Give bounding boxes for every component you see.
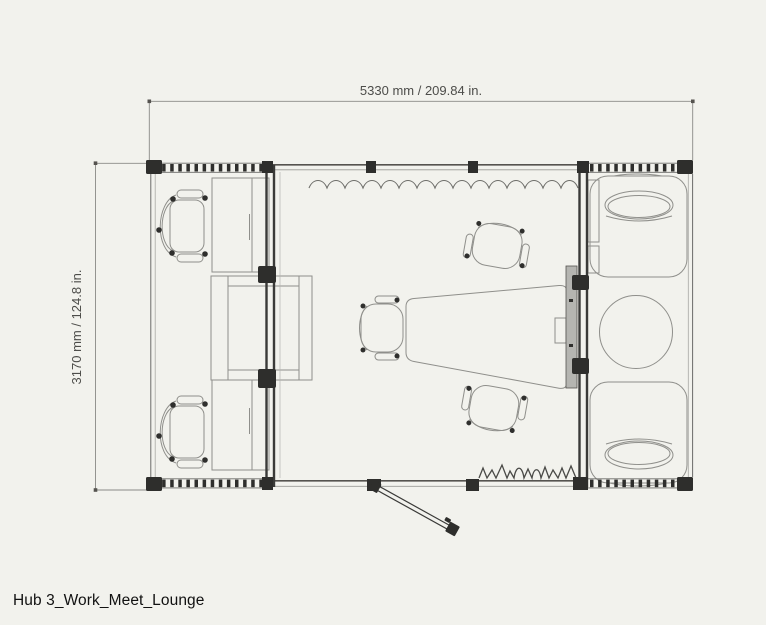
work-area xyxy=(156,178,312,470)
meeting-chair-head xyxy=(360,296,404,360)
wall-left xyxy=(151,174,155,477)
dimension-width-label: 5330 mm / 209.84 in. xyxy=(360,83,482,98)
task-chair-bottom xyxy=(156,396,208,468)
desk-bottom xyxy=(212,376,269,470)
desk-top xyxy=(212,178,269,272)
lounge-armchair-top xyxy=(590,174,687,277)
floor-plan-drawing: 5330 mm / 209.84 in. 3170 mm / 124.8 in. xyxy=(0,0,766,625)
mullion-posts-bottom xyxy=(262,477,588,491)
task-chair-top xyxy=(156,190,208,262)
lounge-armchair-bottom xyxy=(590,382,687,486)
dimension-left: 3170 mm / 124.8 in. xyxy=(69,161,150,491)
floorplan-page: 5330 mm / 209.84 in. 3170 mm / 124.8 in. xyxy=(0,0,766,625)
storage-shelf-unit xyxy=(211,276,312,380)
meeting-chair-bottom xyxy=(458,382,529,436)
lounge-round-table xyxy=(600,296,673,369)
wall-glazing-bottom xyxy=(272,481,578,487)
wall-hatched-bottom-left xyxy=(150,479,268,488)
meeting-chair-top xyxy=(462,218,533,272)
curtain-bottom-bunched xyxy=(479,465,576,478)
meeting-table xyxy=(406,285,567,388)
wall-right xyxy=(688,174,692,477)
wall-hatched-top-right xyxy=(586,163,690,172)
lounge-area xyxy=(588,174,687,486)
wall-hatched-top-left xyxy=(150,163,268,172)
dimension-top: 5330 mm / 209.84 in. xyxy=(148,83,695,160)
mullion-posts-top xyxy=(262,161,589,173)
curtain-top xyxy=(309,181,578,189)
meeting-area xyxy=(309,181,578,479)
plan-title: Hub 3_Work_Meet_Lounge xyxy=(13,591,205,611)
dimension-height-label: 3170 mm / 124.8 in. xyxy=(69,270,84,385)
wall-glazing-top xyxy=(272,165,578,170)
